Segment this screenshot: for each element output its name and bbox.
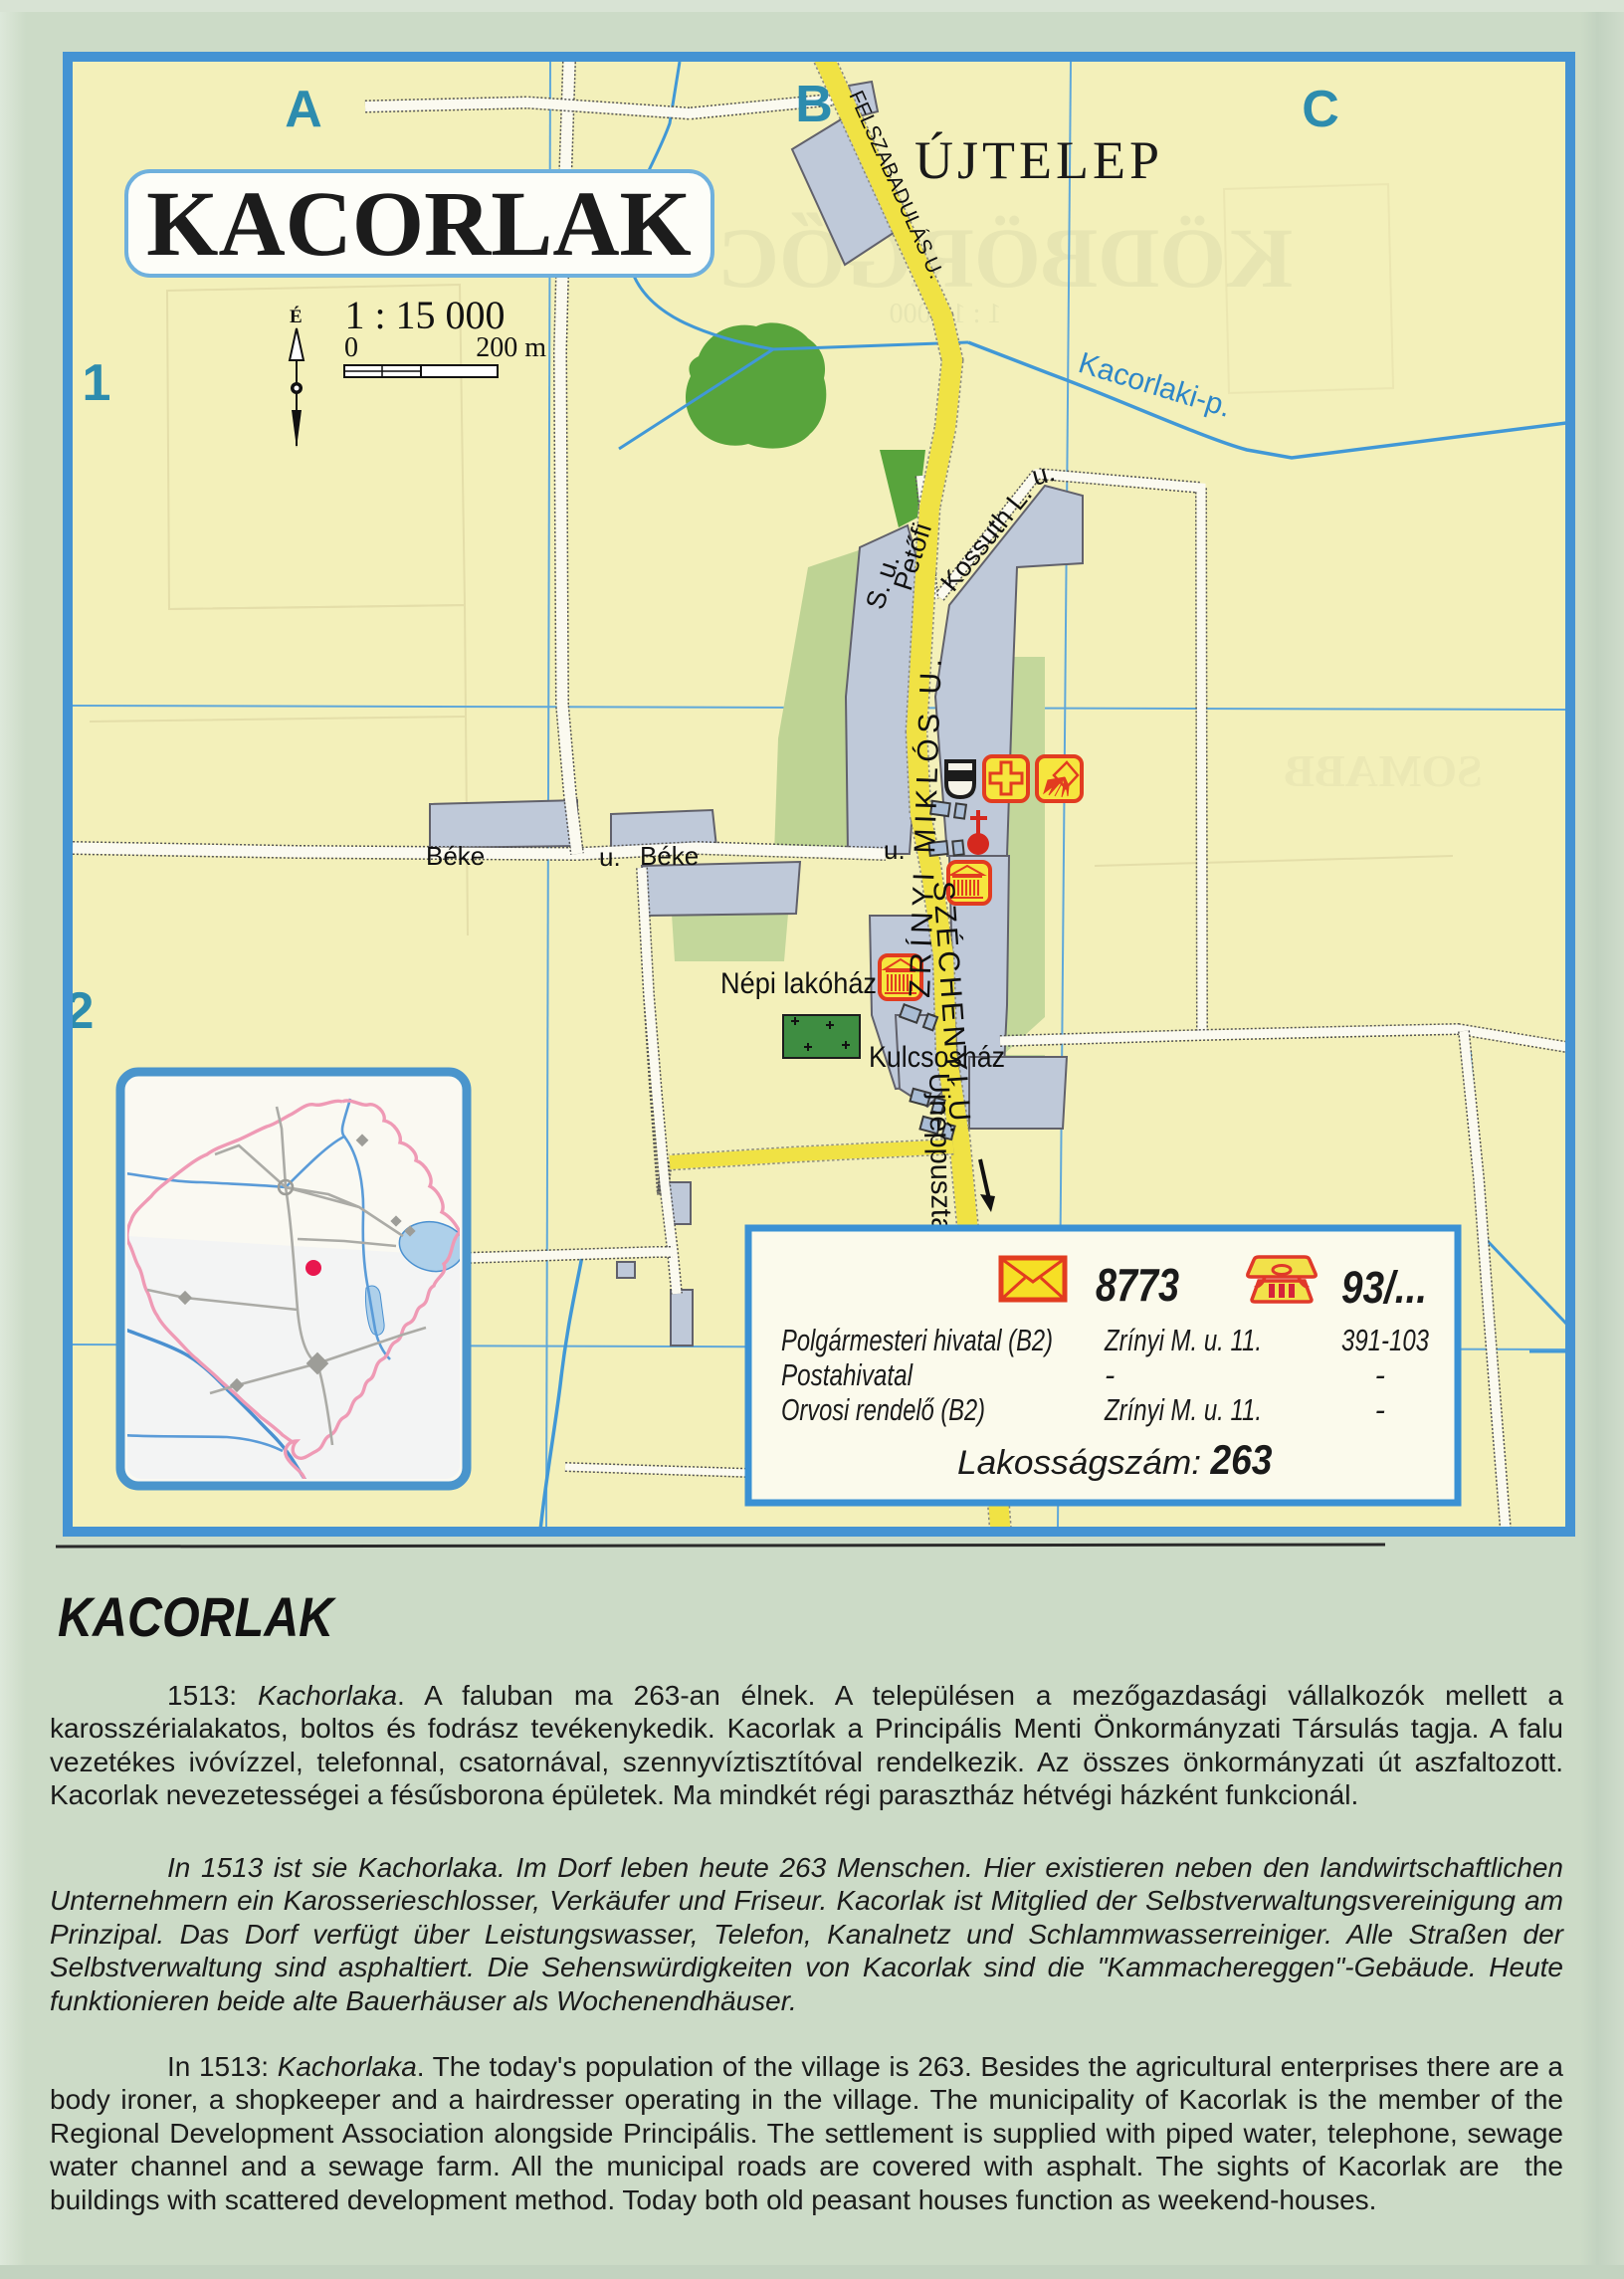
svg-text:Orvosi rendelő (B2): Orvosi rendelő (B2)	[781, 1392, 985, 1427]
svg-text:ÚJTELEP: ÚJTELEP	[914, 130, 1163, 190]
svg-text:B: B	[795, 76, 833, 133]
svg-text:Kulcsosház: Kulcsosház	[869, 1041, 1005, 1074]
svg-text:1: 1	[83, 354, 111, 412]
svg-text:391-103: 391-103	[1341, 1323, 1429, 1357]
svg-text:Béke: Béke	[640, 841, 699, 871]
svg-text:-: -	[1105, 1357, 1115, 1392]
svg-text:KACORLAK: KACORLAK	[146, 173, 692, 276]
svg-text:200 m: 200 m	[476, 332, 546, 363]
svg-text:Polgármesteri hivatal (B2): Polgármesteri hivatal (B2)	[781, 1323, 1053, 1357]
svg-text:É: É	[290, 306, 303, 327]
svg-text:8773: 8773	[1096, 1259, 1179, 1311]
svg-text:-: -	[1375, 1357, 1385, 1392]
svg-text:KÖDBÖRGŐC: KÖDBÖRGŐC	[717, 210, 1293, 306]
svg-text:Újnéppuszta: Újnéppuszta	[922, 1073, 958, 1235]
svg-text:SOMABB: SOMABB	[1284, 745, 1482, 796]
svg-text:Népi lakóház: Népi lakóház	[720, 967, 877, 1000]
svg-text:93/...: 93/...	[1341, 1262, 1427, 1313]
svg-text:Lakosságszám: 263: Lakosságszám: 263	[957, 1436, 1272, 1483]
svg-text:Zrínyi M. u. 11.: Zrínyi M. u. 11.	[1104, 1392, 1262, 1427]
svg-text:u.: u.	[599, 842, 621, 872]
svg-text:Zrínyi M. u. 11.: Zrínyi M. u. 11.	[1104, 1323, 1262, 1357]
svg-text:C: C	[1302, 81, 1339, 138]
svg-text:0: 0	[344, 332, 358, 363]
svg-text:Béke: Béke	[426, 841, 485, 871]
svg-text:-: -	[1375, 1392, 1385, 1427]
svg-text:A: A	[285, 81, 322, 138]
svg-text:u.: u.	[884, 835, 906, 865]
svg-text:Postahivatal: Postahivatal	[781, 1357, 913, 1392]
svg-text:1 : 15 000: 1 : 15 000	[344, 293, 505, 337]
